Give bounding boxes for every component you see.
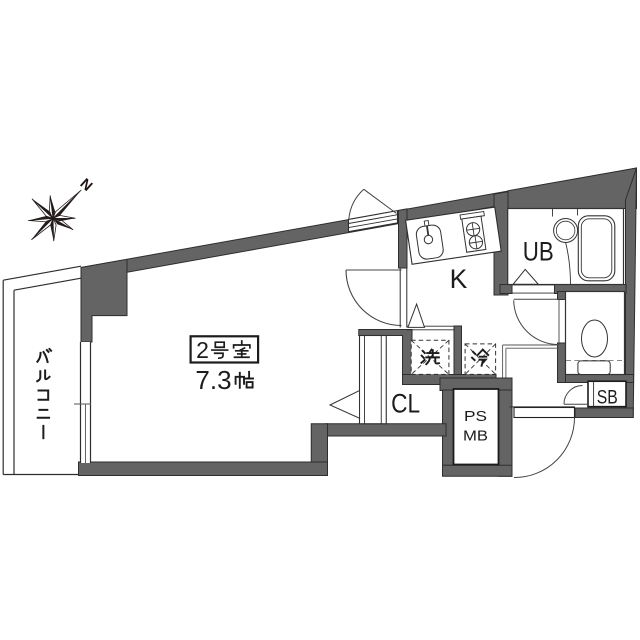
svg-text:2: 2 (196, 337, 209, 363)
svg-text:K: K (450, 264, 468, 294)
svg-text:PS: PS (464, 408, 487, 425)
svg-text:CL: CL (391, 389, 420, 419)
svg-text:7.3: 7.3 (195, 365, 231, 395)
svg-text:SB: SB (597, 387, 618, 409)
svg-text:MB: MB (463, 428, 488, 445)
svg-text:UB: UB (523, 237, 554, 267)
